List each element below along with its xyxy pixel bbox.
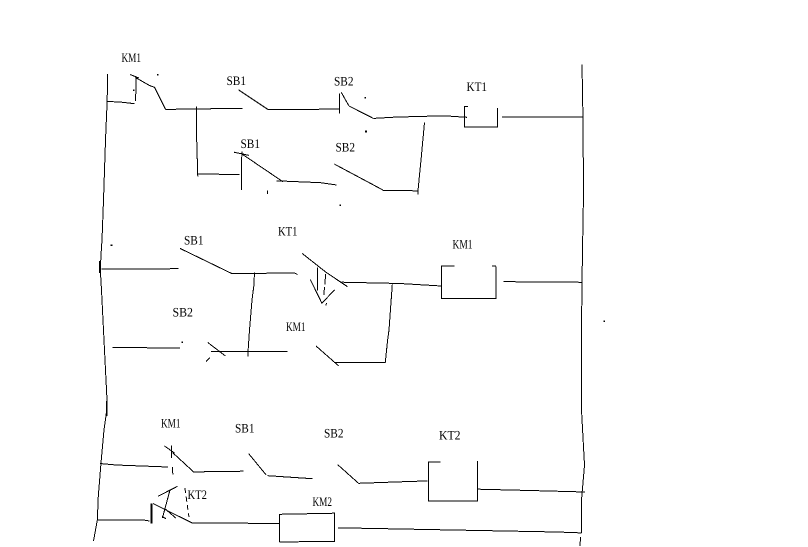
svg-text:KT1: KT1 xyxy=(278,224,298,239)
svg-text:SB1: SB1 xyxy=(241,136,261,151)
svg-text:SB2: SB2 xyxy=(324,426,344,441)
svg-text:KM1: KM1 xyxy=(453,237,473,252)
svg-text:SB2: SB2 xyxy=(334,74,354,89)
svg-text:SB1: SB1 xyxy=(184,233,204,248)
svg-text:SB2: SB2 xyxy=(173,305,194,320)
svg-text:KT1: KT1 xyxy=(467,79,488,94)
svg-text:KM1: KM1 xyxy=(122,50,142,65)
svg-text:SB2: SB2 xyxy=(336,140,356,155)
svg-text:KM1: KM1 xyxy=(286,319,306,334)
svg-text:KM2: KM2 xyxy=(313,494,333,509)
svg-text:KT2: KT2 xyxy=(439,428,461,443)
svg-text:KT2: KT2 xyxy=(188,487,208,502)
svg-text:KM1: KM1 xyxy=(161,416,181,431)
svg-text:SB1: SB1 xyxy=(227,73,247,88)
svg-text:SB1: SB1 xyxy=(235,421,255,436)
